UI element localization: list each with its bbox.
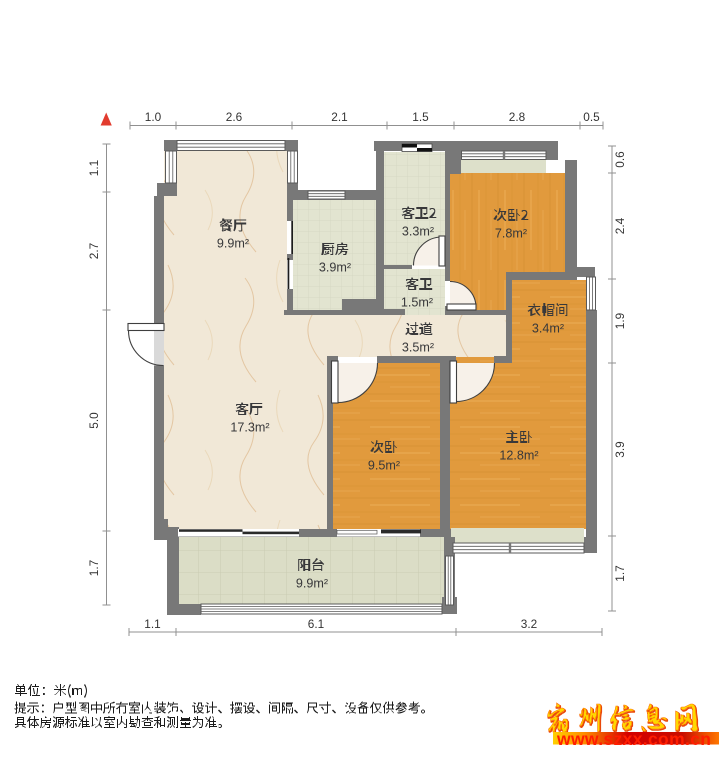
svg-text:2.8: 2.8 [509,110,526,124]
svg-text:2.7: 2.7 [87,243,101,259]
svg-text:9.9m²: 9.9m² [217,237,249,251]
svg-text:5.0: 5.0 [87,412,101,429]
svg-text:www.szxx.com.cn: www.szxx.com.cn [556,729,711,749]
svg-text:17.3m²: 17.3m² [230,421,269,435]
svg-text:2.6: 2.6 [226,110,243,124]
svg-text:1.0: 1.0 [145,110,162,124]
svg-text:1.1: 1.1 [144,617,160,631]
svg-text:3.9m²: 3.9m² [319,261,351,275]
svg-text:1.7: 1.7 [613,565,627,581]
svg-text:1.5m²: 1.5m² [401,296,433,310]
svg-text:1.5: 1.5 [412,110,429,124]
svg-text:3.2: 3.2 [521,617,537,631]
svg-text:3.4m²: 3.4m² [532,322,564,336]
svg-text:0.6: 0.6 [613,151,627,168]
svg-text:12.8m²: 12.8m² [499,449,538,463]
svg-text:1.1: 1.1 [87,160,101,176]
svg-text:7.8m²: 7.8m² [495,227,527,241]
svg-text:9.5m²: 9.5m² [368,459,400,473]
svg-text:3.3m²: 3.3m² [402,225,434,239]
svg-text:1.9: 1.9 [613,313,627,329]
svg-text:2.1: 2.1 [331,110,347,124]
svg-text:1.7: 1.7 [87,560,101,576]
svg-text:3.5m²: 3.5m² [402,341,434,355]
svg-text:2.4: 2.4 [613,217,627,234]
svg-text:3.9: 3.9 [613,441,627,457]
svg-text:6.1: 6.1 [308,617,324,631]
svg-text:9.9m²: 9.9m² [296,577,328,591]
svg-text:0.5: 0.5 [583,110,600,124]
